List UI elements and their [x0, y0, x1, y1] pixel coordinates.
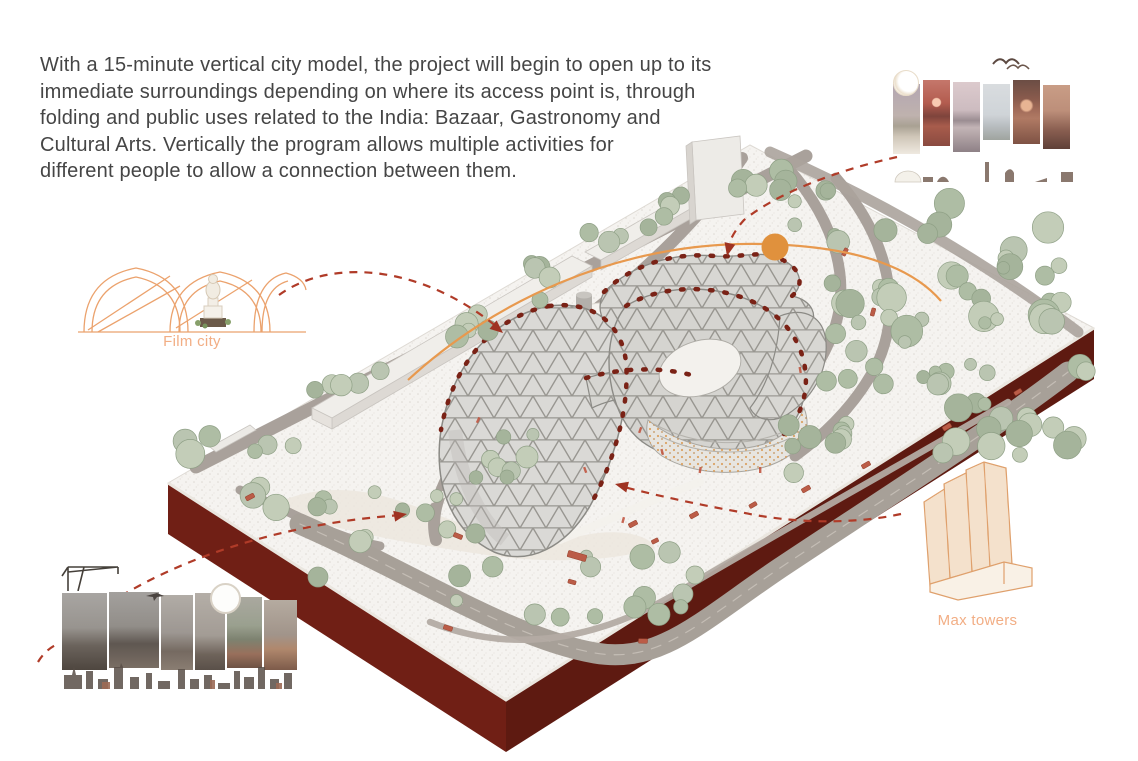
sun-icon: [210, 583, 241, 614]
city-silhouette: [62, 659, 302, 689]
photo-panel: [983, 84, 1010, 140]
photo-panel: [109, 592, 159, 668]
photo-panel: [923, 80, 950, 146]
city-photo-collage: [62, 585, 302, 685]
moon-icon: [893, 70, 919, 96]
crane-icon: [58, 559, 138, 591]
film-city-label: Film city: [72, 333, 312, 350]
film-city-sketch: [72, 246, 312, 341]
airplane-icon: [146, 591, 164, 601]
birds-icon: [989, 50, 1033, 72]
river-photo-collage: [893, 64, 1085, 174]
route-node-dot: [762, 234, 789, 261]
max-towers-label: Max towers: [905, 612, 1050, 629]
max-towers-sketch: [908, 458, 1048, 608]
photo-panel: [1043, 85, 1070, 149]
photo-panel: [1013, 80, 1040, 144]
photo-panel: [953, 82, 980, 152]
riverfront-silhouette: [893, 158, 1085, 184]
connector-stub: [38, 643, 60, 662]
presentation-board: With a 15-minute vertical city model, th…: [0, 0, 1138, 761]
